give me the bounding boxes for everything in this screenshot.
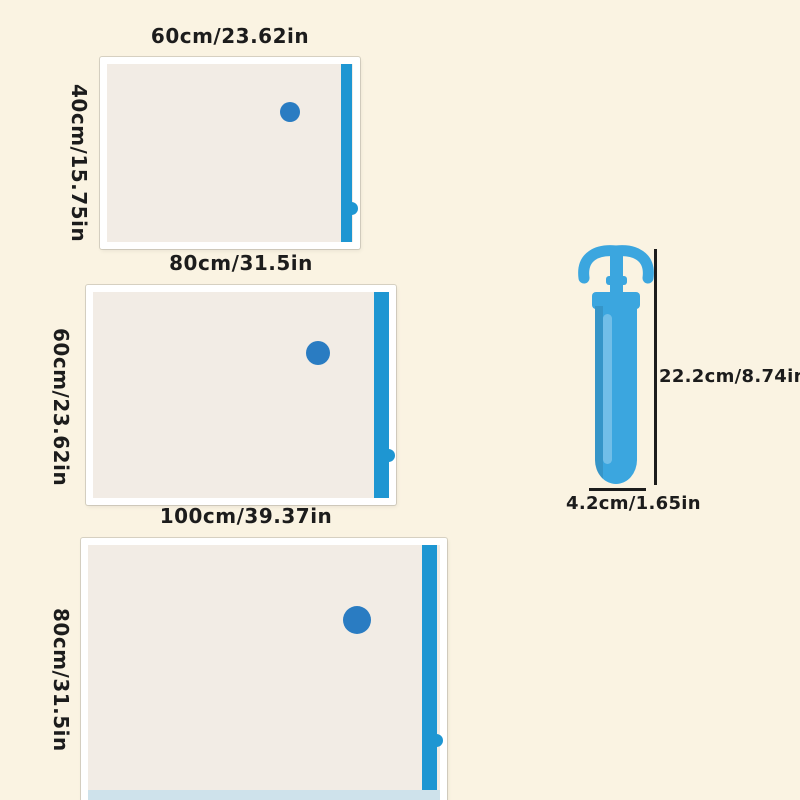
air-valve-icon [343, 606, 371, 634]
bag-large-height-label: 80cm/31.5in [49, 608, 73, 752]
pump-height-measure-line [654, 249, 657, 485]
pump-body-icon [592, 292, 640, 484]
vacuum-bag-small [100, 57, 360, 249]
bag-bottom-seal-band [88, 790, 440, 800]
zip-slider-icon [388, 449, 395, 462]
bag-medium-height-label: 60cm/23.62in [49, 328, 73, 486]
zip-slider-icon [436, 734, 443, 747]
vacuum-bag-large [81, 538, 447, 800]
pump-width-label: 4.2cm/1.65in [566, 493, 701, 514]
air-valve-icon [306, 341, 330, 365]
zip-slider-icon [351, 202, 358, 215]
vacuum-bag-medium [86, 285, 396, 505]
seal-strip-icon [341, 64, 352, 242]
air-valve-icon [280, 102, 300, 122]
bag-large-width-label: 100cm/39.37in [81, 504, 411, 528]
product-dimension-diagram: 60cm/23.62in 40cm/15.75in 80cm/31.5in 60… [0, 0, 800, 800]
bag-small-surface [107, 64, 353, 242]
bag-medium-width-label: 80cm/31.5in [86, 251, 396, 275]
bag-small-width-label: 60cm/23.62in [100, 24, 360, 48]
pump-handle-icon [584, 251, 649, 296]
bag-large-surface [88, 545, 440, 800]
pump-height-label: 22.2cm/8.74in [659, 366, 800, 387]
bag-small-height-label: 40cm/15.75in [67, 84, 91, 242]
seal-strip-icon [422, 545, 437, 800]
seal-strip-icon [374, 292, 389, 498]
pump-width-measure-line [589, 488, 646, 491]
bag-medium-surface [93, 292, 389, 498]
hand-pump-illustration [576, 242, 656, 488]
